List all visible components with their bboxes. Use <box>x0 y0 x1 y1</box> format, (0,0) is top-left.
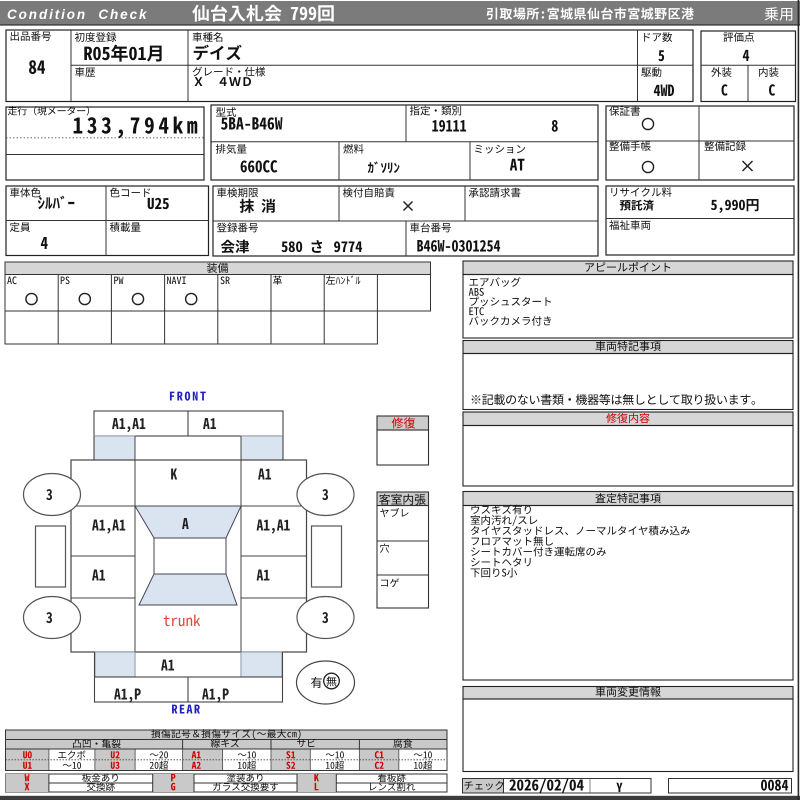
svg-text:Condition Check: Condition Check <box>7 7 148 22</box>
